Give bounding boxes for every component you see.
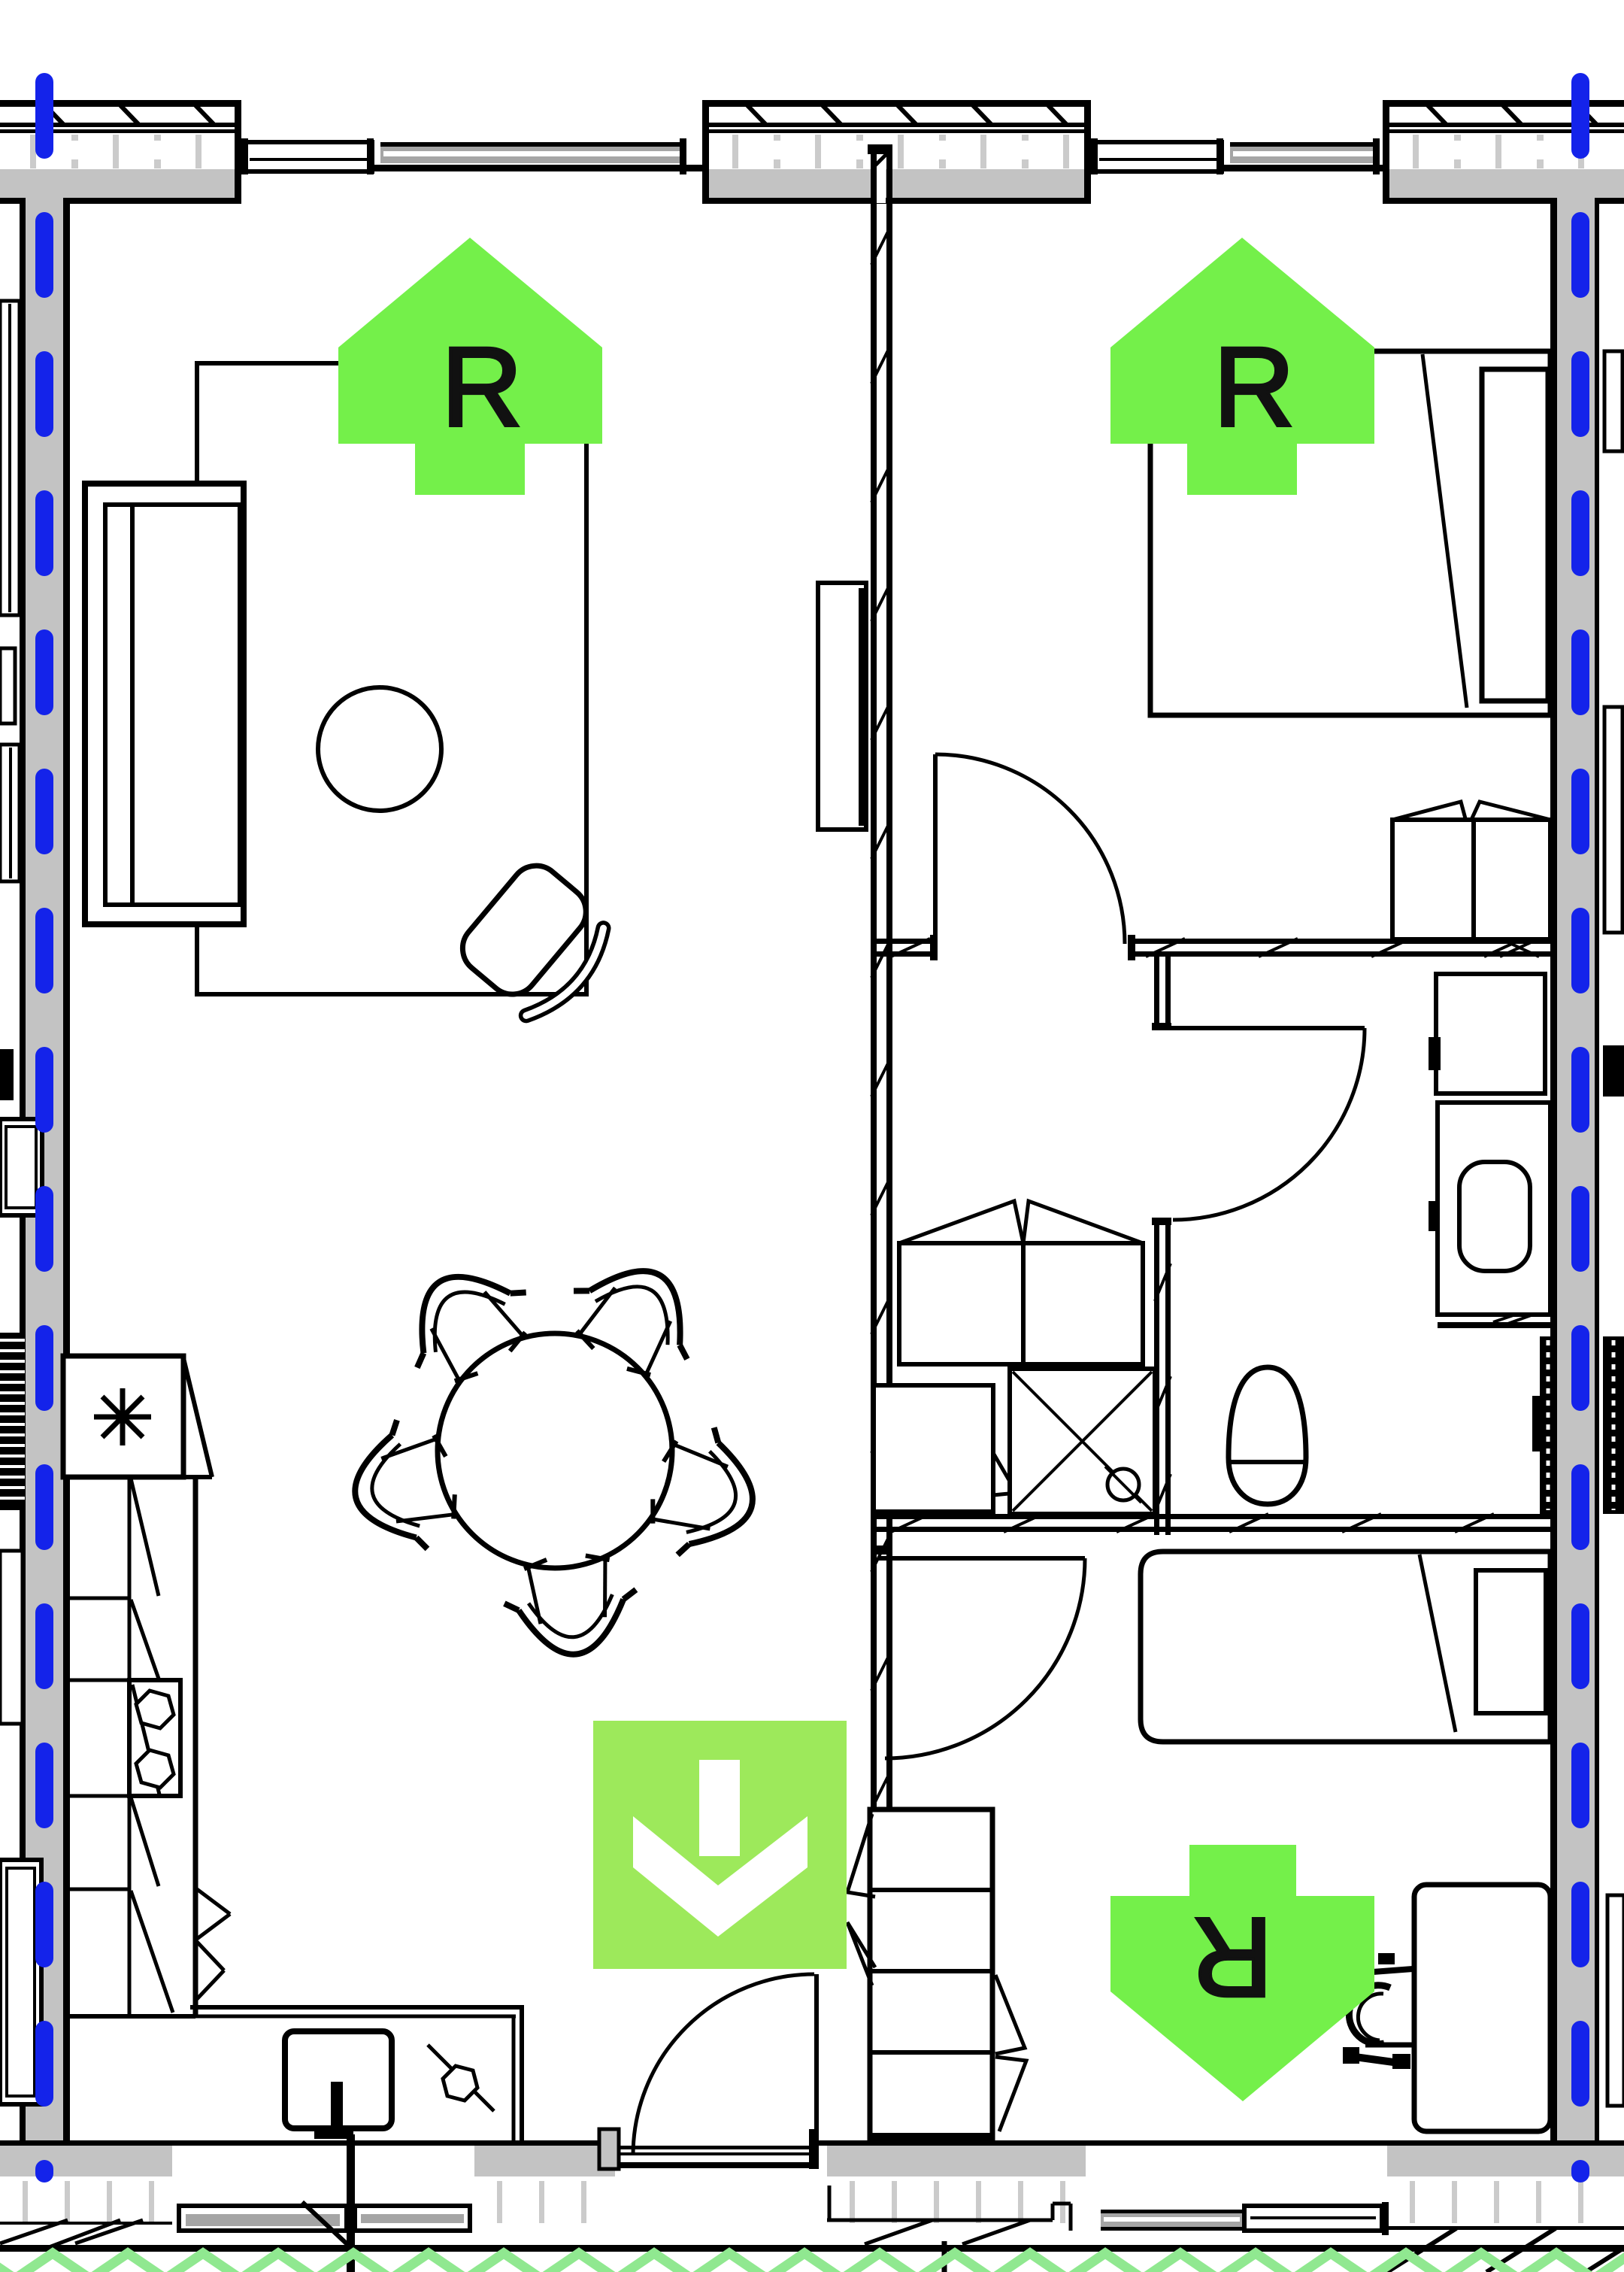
svg-text:R: R — [1192, 1894, 1273, 2021]
svg-text:R: R — [1213, 323, 1295, 450]
svg-text:R: R — [441, 323, 523, 450]
